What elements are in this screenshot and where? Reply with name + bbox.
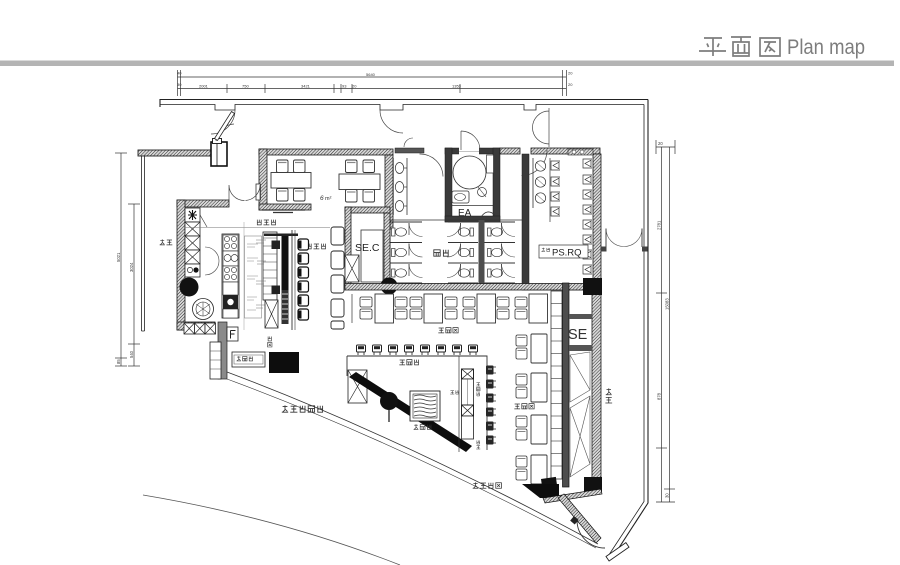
svg-text:5021: 5021 (116, 252, 121, 262)
svg-text:85: 85 (116, 359, 121, 364)
svg-text:3024: 3024 (129, 262, 134, 272)
svg-text:93: 93 (342, 84, 347, 89)
svg-text:20: 20 (568, 82, 573, 87)
svg-text:SE: SE (568, 327, 588, 343)
svg-text:30: 30 (665, 493, 670, 498)
svg-text:PS.RQ: PS.RQ (552, 248, 582, 259)
svg-text:3421: 3421 (301, 84, 311, 89)
svg-text:6: 6 (320, 195, 324, 202)
svg-text:750: 750 (242, 84, 249, 89)
svg-text:2781: 2781 (657, 220, 662, 230)
svg-text:EA: EA (458, 208, 472, 219)
svg-text:20: 20 (352, 84, 357, 89)
svg-text:Plan map: Plan map (787, 36, 865, 59)
svg-text:2001: 2001 (199, 84, 209, 89)
svg-text:5640: 5640 (366, 72, 376, 77)
svg-text:20: 20 (568, 71, 573, 76)
svg-text:1353: 1353 (452, 84, 462, 89)
svg-text:SE.C: SE.C (355, 242, 380, 254)
svg-text:40: 40 (177, 71, 182, 76)
svg-text:m²: m² (325, 196, 332, 202)
svg-text:30: 30 (177, 82, 182, 87)
svg-text:878: 878 (657, 392, 662, 400)
svg-text:15083: 15083 (665, 298, 670, 310)
svg-text:540: 540 (129, 350, 134, 358)
svg-text:20: 20 (658, 141, 663, 146)
